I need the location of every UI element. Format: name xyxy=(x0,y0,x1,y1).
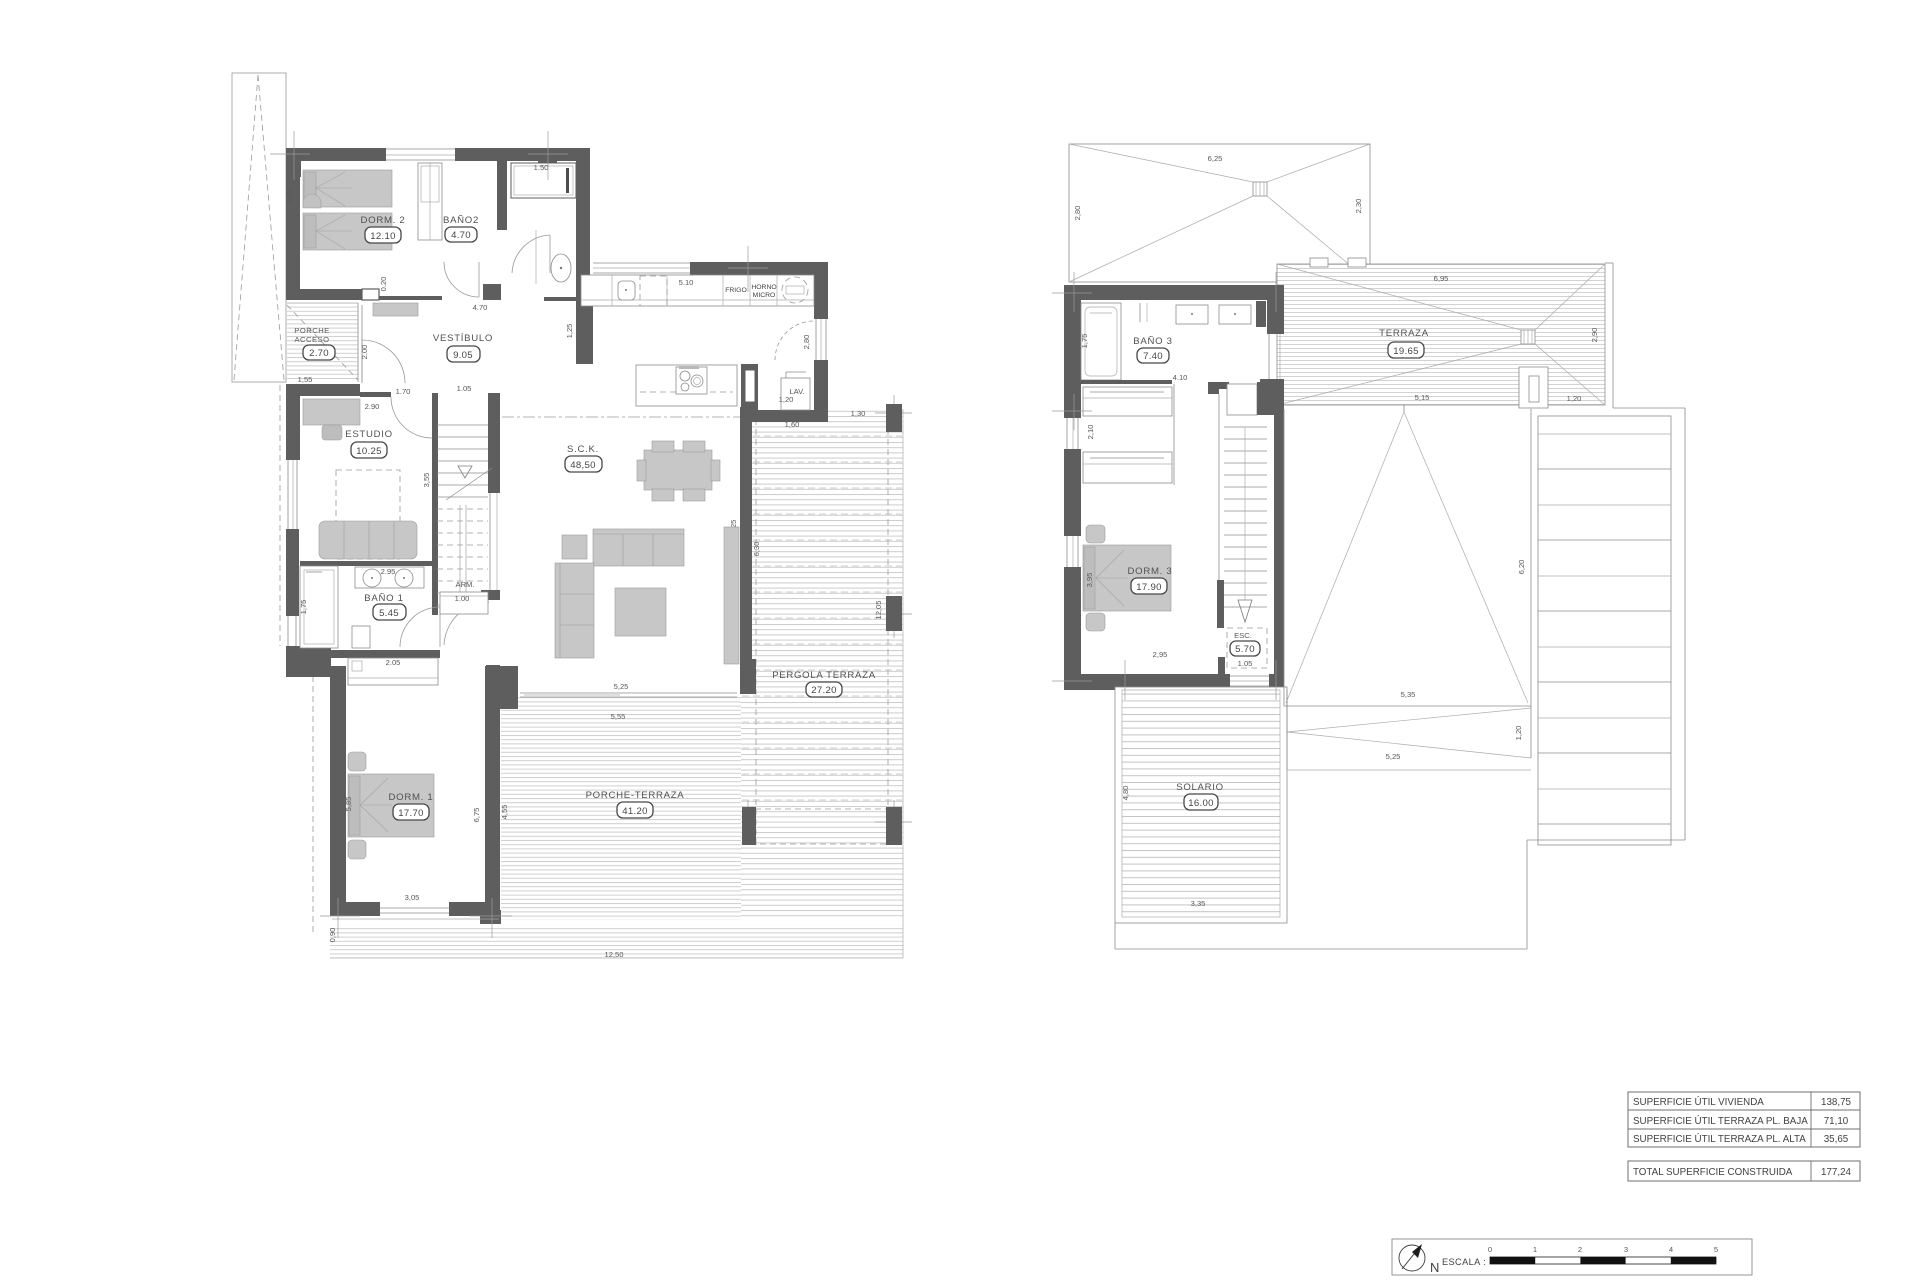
svg-text:3,95: 3,95 xyxy=(1085,573,1094,588)
svg-text:HORNO: HORNO xyxy=(751,284,776,291)
svg-text:2.70: 2.70 xyxy=(309,348,329,359)
svg-text:SOLARIO: SOLARIO xyxy=(1176,782,1224,793)
svg-text:TERRAZA: TERRAZA xyxy=(1379,328,1429,339)
svg-text:1,20: 1,20 xyxy=(779,395,794,404)
svg-text:ARM.: ARM. xyxy=(456,580,475,589)
svg-text:5,25: 5,25 xyxy=(614,682,629,691)
svg-text:17.70: 17.70 xyxy=(398,808,424,819)
svg-text:5,55: 5,55 xyxy=(611,712,626,721)
svg-text:S.C.K.: S.C.K. xyxy=(567,444,599,455)
svg-text:5.10: 5.10 xyxy=(679,278,694,287)
svg-text:1,55: 1,55 xyxy=(298,375,313,384)
svg-text:2.95: 2.95 xyxy=(381,567,396,576)
svg-text:PERGOLA TERRAZA: PERGOLA TERRAZA xyxy=(772,670,876,681)
svg-text:ESC.: ESC. xyxy=(1234,631,1252,640)
svg-text:1.00: 1.00 xyxy=(455,594,470,603)
svg-text:VESTÍBULO: VESTÍBULO xyxy=(433,333,493,344)
svg-text:2.05: 2.05 xyxy=(386,658,401,667)
svg-text:1.70: 1.70 xyxy=(396,387,411,396)
svg-text:MICRO: MICRO xyxy=(753,292,776,299)
svg-text:5,35: 5,35 xyxy=(1401,690,1416,699)
svg-text:17.90: 17.90 xyxy=(1136,582,1162,593)
svg-text:2,95: 2,95 xyxy=(1153,650,1168,659)
svg-text:1,25: 1,25 xyxy=(565,324,574,339)
svg-text:4,55: 4,55 xyxy=(500,805,509,820)
svg-text:DORM. 3: DORM. 3 xyxy=(1128,566,1173,577)
svg-text:71,10: 71,10 xyxy=(1824,1116,1849,1127)
svg-text:4: 4 xyxy=(1669,1245,1673,1254)
svg-text:BAÑO 3: BAÑO 3 xyxy=(1133,336,1172,347)
svg-text:6,20: 6,20 xyxy=(1517,560,1526,575)
svg-text:12,05: 12,05 xyxy=(874,600,883,619)
svg-text:2: 2 xyxy=(1578,1245,1582,1254)
svg-text:3,35: 3,35 xyxy=(1191,899,1206,908)
svg-text:12,50: 12,50 xyxy=(604,950,623,959)
svg-text:PORCHE: PORCHE xyxy=(294,326,330,335)
svg-text:5: 5 xyxy=(1714,1245,1718,1254)
svg-text:BAÑO2: BAÑO2 xyxy=(443,215,479,226)
svg-text:DORM. 2: DORM. 2 xyxy=(361,215,406,226)
svg-text:6,95: 6,95 xyxy=(1434,274,1449,283)
svg-text:0: 0 xyxy=(1488,1245,1492,1254)
svg-text:3: 3 xyxy=(1624,1245,1628,1254)
svg-text:3,55: 3,55 xyxy=(422,473,431,488)
svg-text:6,30: 6,30 xyxy=(752,542,761,557)
svg-text:2,90: 2,90 xyxy=(1590,328,1599,343)
svg-text:6,75: 6,75 xyxy=(472,808,481,823)
svg-text:4,80: 4,80 xyxy=(1121,786,1130,801)
svg-text:35,65: 35,65 xyxy=(1824,1134,1849,1145)
svg-text:SUPERFICIE ÚTIL TERRAZA PL. BA: SUPERFICIE ÚTIL TERRAZA PL. BAJA xyxy=(1633,1116,1808,1127)
svg-text:10.25: 10.25 xyxy=(356,446,382,457)
svg-text:BAÑO 1: BAÑO 1 xyxy=(364,593,403,604)
svg-text:27.20: 27.20 xyxy=(811,685,837,696)
svg-text:41.20: 41.20 xyxy=(622,806,648,817)
svg-text:3,05: 3,05 xyxy=(405,893,420,902)
svg-text:TOTAL SUPERFICIE CONSTRUIDA: TOTAL SUPERFICIE CONSTRUIDA xyxy=(1633,1167,1793,1178)
svg-text:1,75: 1,75 xyxy=(1080,334,1089,349)
svg-text:5,15: 5,15 xyxy=(1415,393,1430,402)
svg-text:2,30: 2,30 xyxy=(1354,199,1363,214)
svg-text:2,80: 2,80 xyxy=(802,335,811,350)
svg-text:48,50: 48,50 xyxy=(570,460,596,471)
svg-text:1.05: 1.05 xyxy=(457,384,472,393)
svg-text:2,75: 2,75 xyxy=(284,190,293,205)
svg-text:5.70: 5.70 xyxy=(1235,644,1255,655)
svg-text:1,30: 1,30 xyxy=(851,409,866,418)
svg-text:12.10: 12.10 xyxy=(370,231,396,242)
svg-text:1,60: 1,60 xyxy=(785,420,800,429)
svg-text:SUPERFICIE ÚTIL VIVIENDA: SUPERFICIE ÚTIL VIVIENDA xyxy=(1633,1097,1764,1108)
svg-text:5,25: 5,25 xyxy=(1386,752,1401,761)
svg-text:5,85: 5,85 xyxy=(344,797,353,812)
svg-text:PORCHE-TERRAZA: PORCHE-TERRAZA xyxy=(586,790,685,801)
svg-text:SUPERFICIE ÚTIL TERRAZA PL. AL: SUPERFICIE ÚTIL TERRAZA PL. ALTA xyxy=(1633,1134,1806,1145)
svg-text:1: 1 xyxy=(1533,1245,1537,1254)
svg-text:2,10: 2,10 xyxy=(1086,425,1095,440)
svg-text:ESTUDIO: ESTUDIO xyxy=(345,429,393,440)
svg-text:0,90: 0,90 xyxy=(328,928,337,943)
svg-text:4.10: 4.10 xyxy=(1173,373,1188,382)
svg-text:N: N xyxy=(1430,1260,1439,1275)
svg-text:19.65: 19.65 xyxy=(1393,346,1419,357)
svg-text:16.00: 16.00 xyxy=(1188,798,1214,809)
svg-text:177,24: 177,24 xyxy=(1821,1167,1852,1178)
svg-text:5.45: 5.45 xyxy=(379,608,399,619)
svg-text:1.50: 1.50 xyxy=(534,163,549,172)
svg-text:2.90: 2.90 xyxy=(365,402,380,411)
svg-text:9.05: 9.05 xyxy=(453,350,473,361)
svg-text:DORM. 1: DORM. 1 xyxy=(389,792,434,803)
svg-text:2.00: 2.00 xyxy=(360,345,369,360)
svg-text:1,20: 1,20 xyxy=(1567,394,1582,403)
svg-text:2,80: 2,80 xyxy=(1073,206,1082,221)
svg-text:1,75: 1,75 xyxy=(299,600,308,615)
svg-text:7.40: 7.40 xyxy=(1143,351,1163,362)
svg-text:0.20: 0.20 xyxy=(379,277,388,292)
svg-text:FRIGO: FRIGO xyxy=(725,287,747,294)
svg-text:1.05: 1.05 xyxy=(1238,659,1253,668)
svg-text:4.70: 4.70 xyxy=(451,230,471,241)
svg-text:1,20: 1,20 xyxy=(1514,726,1523,741)
svg-text:138,75: 138,75 xyxy=(1821,1097,1852,1108)
svg-text:4.70: 4.70 xyxy=(473,303,488,312)
svg-text:ACCESO: ACCESO xyxy=(294,335,329,344)
svg-text:ESCALA :: ESCALA : xyxy=(1442,1257,1486,1267)
svg-text:6,25: 6,25 xyxy=(1208,154,1223,163)
